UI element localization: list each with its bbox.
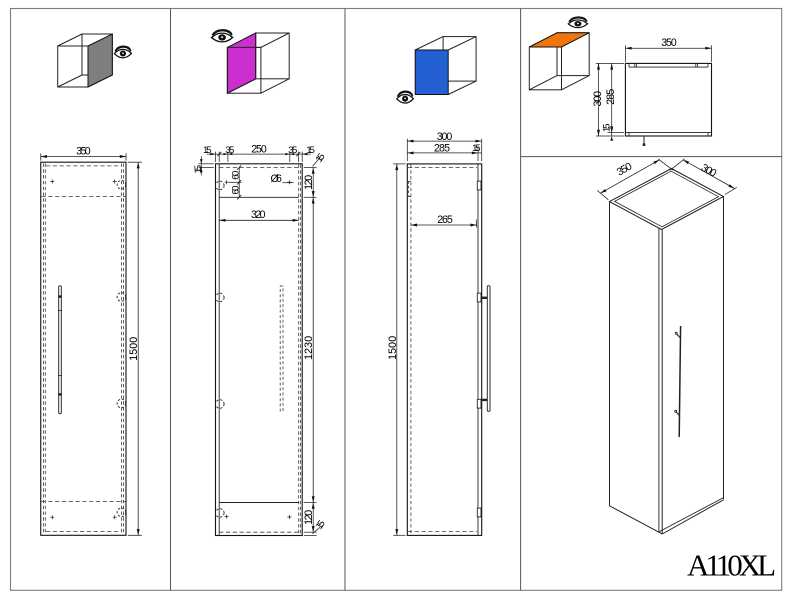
- svg-text:15: 15: [193, 165, 204, 174]
- svg-text:120: 120: [303, 510, 315, 525]
- svg-text:15: 15: [601, 123, 612, 132]
- svg-text:120: 120: [303, 175, 315, 190]
- svg-text:15: 15: [472, 143, 481, 154]
- svg-text:1500: 1500: [387, 336, 399, 360]
- svg-text:350: 350: [76, 145, 91, 157]
- svg-text:A110XL: A110XL: [687, 548, 776, 583]
- svg-text:15: 15: [306, 145, 315, 156]
- svg-text:1500: 1500: [128, 337, 140, 361]
- svg-text:300: 300: [592, 91, 604, 107]
- svg-text:320: 320: [251, 209, 266, 221]
- svg-text:60: 60: [231, 171, 242, 180]
- svg-text:35: 35: [288, 145, 297, 156]
- svg-text:300: 300: [437, 131, 453, 143]
- svg-text:1230: 1230: [303, 336, 315, 360]
- svg-text:15: 15: [203, 145, 212, 156]
- svg-text:60: 60: [231, 186, 242, 195]
- svg-text:265: 265: [437, 214, 453, 226]
- svg-text:285: 285: [605, 89, 617, 105]
- svg-text:250: 250: [251, 144, 267, 156]
- svg-text:285: 285: [434, 142, 450, 154]
- svg-text:350: 350: [661, 37, 677, 49]
- svg-text:35: 35: [225, 145, 234, 156]
- svg-text:Ø6: Ø6: [270, 173, 282, 185]
